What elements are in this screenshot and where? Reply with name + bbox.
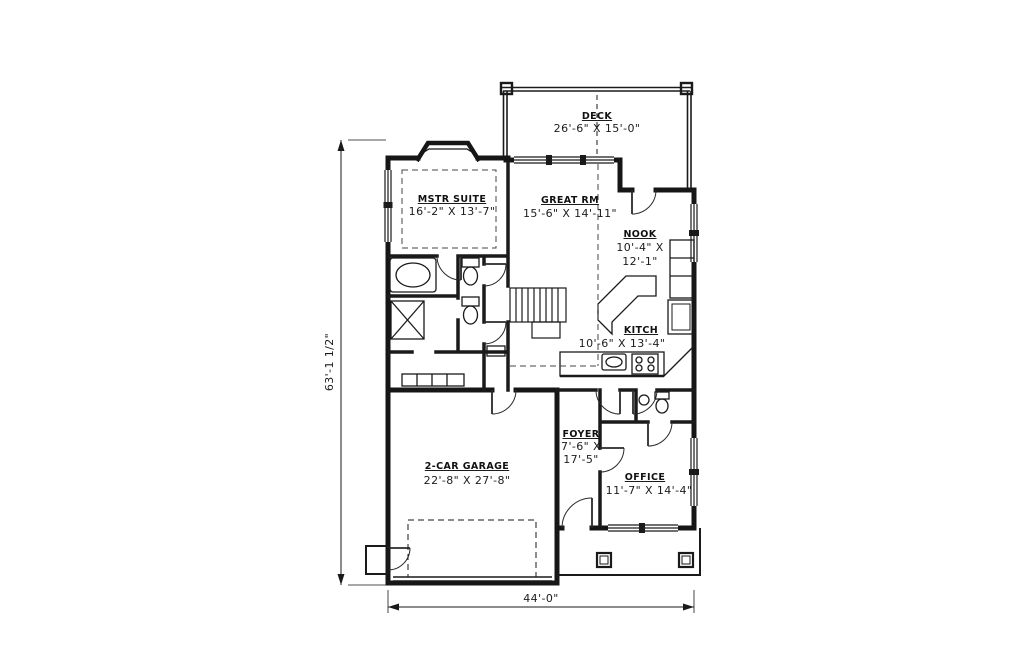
floor-plan-drawing: DECK 26'-6" X 15'-0" MSTR SUITE 16'-2" X…: [0, 0, 1024, 663]
overall-width-dimension: 44'-0": [523, 592, 558, 605]
toilet: [462, 297, 479, 306]
powder-sink: [639, 395, 649, 405]
cooktop: [632, 354, 658, 374]
office-name: OFFICE: [625, 472, 665, 483]
great-room-name: GREAT RM: [541, 195, 599, 206]
kitchen-dims: 10'-6" X 13'-4": [579, 337, 666, 350]
master-suite-name: MSTR SUITE: [418, 194, 486, 205]
deck-name: DECK: [582, 111, 613, 122]
rear-deck: [501, 83, 692, 188]
garage-name: 2-CAR GARAGE: [425, 461, 509, 472]
foyer-name: FOYER: [563, 429, 600, 440]
nook-dims-1: 10'-4" X: [616, 241, 663, 254]
dimension-left: [338, 140, 387, 585]
porch-post: [597, 553, 611, 567]
stairs: [510, 288, 566, 338]
floor-plan-page: DECK 26'-6" X 15'-0" MSTR SUITE 16'-2" X…: [0, 0, 1024, 663]
kitchen-counter: [560, 352, 664, 376]
garage-elements: [366, 520, 552, 581]
garage-side-landing: [366, 546, 388, 574]
mud-bench: [402, 374, 464, 386]
deck-dims: 26'-6" X 15'-0": [554, 122, 641, 135]
garage-door: [393, 577, 552, 581]
nook-dims-2: 12'-1": [622, 255, 657, 268]
front-porch: [557, 528, 700, 575]
kitchen-name: KITCH: [624, 325, 658, 336]
master-suite-dims: 16'-2" X 13'-7": [409, 205, 496, 218]
nook-name: NOOK: [623, 229, 656, 240]
powder-toilet: [656, 399, 668, 413]
garage-door-dashed-outline: [408, 520, 536, 577]
foyer-dims-1: 7'-6" X: [561, 440, 601, 453]
porch-post: [679, 553, 693, 567]
great-room-dims: 15'-6" X 14'-11": [523, 207, 617, 220]
foyer-dims-2: 17'-5": [563, 453, 598, 466]
overall-height-dimension: 63'-1 1/2": [323, 333, 336, 391]
office-dims: 11'-7" X 14'-4": [606, 484, 693, 497]
toilet: [462, 258, 479, 267]
garage-dims: 22'-8" X 27'-8": [424, 474, 511, 487]
bay-window-wall: [418, 143, 478, 159]
